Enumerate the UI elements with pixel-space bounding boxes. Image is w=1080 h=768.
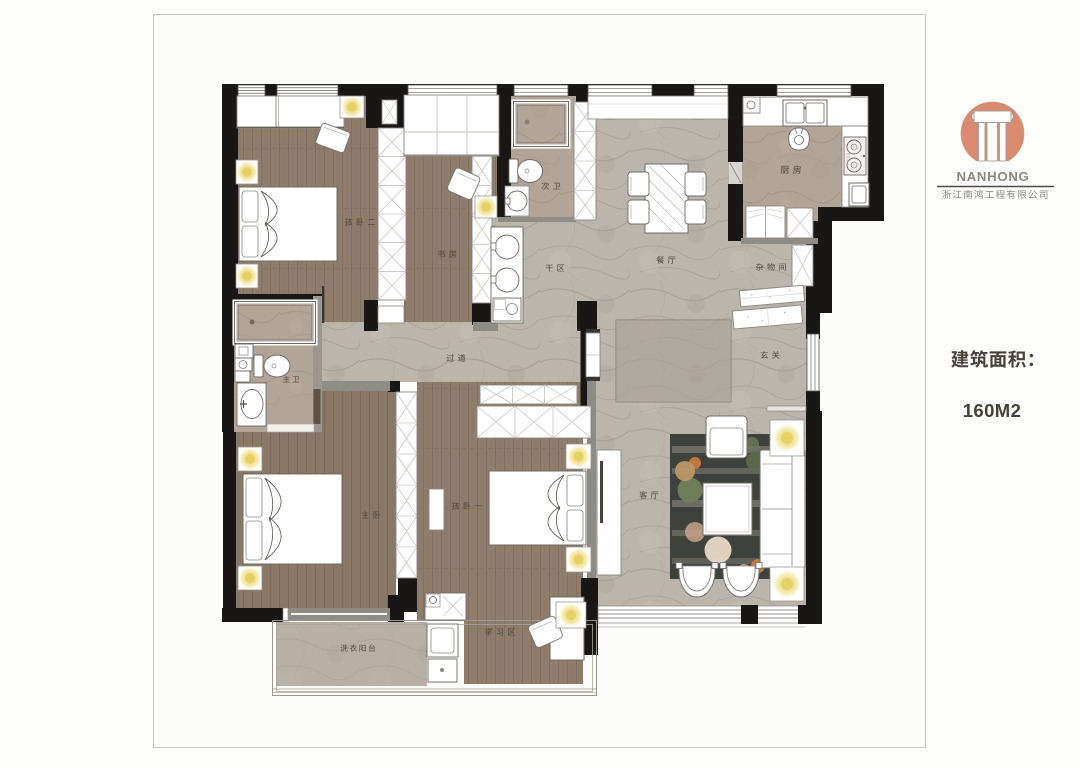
svg-text:160M2: 160M2 bbox=[963, 400, 1022, 421]
svg-text:NANHONG: NANHONG bbox=[956, 169, 1029, 184]
